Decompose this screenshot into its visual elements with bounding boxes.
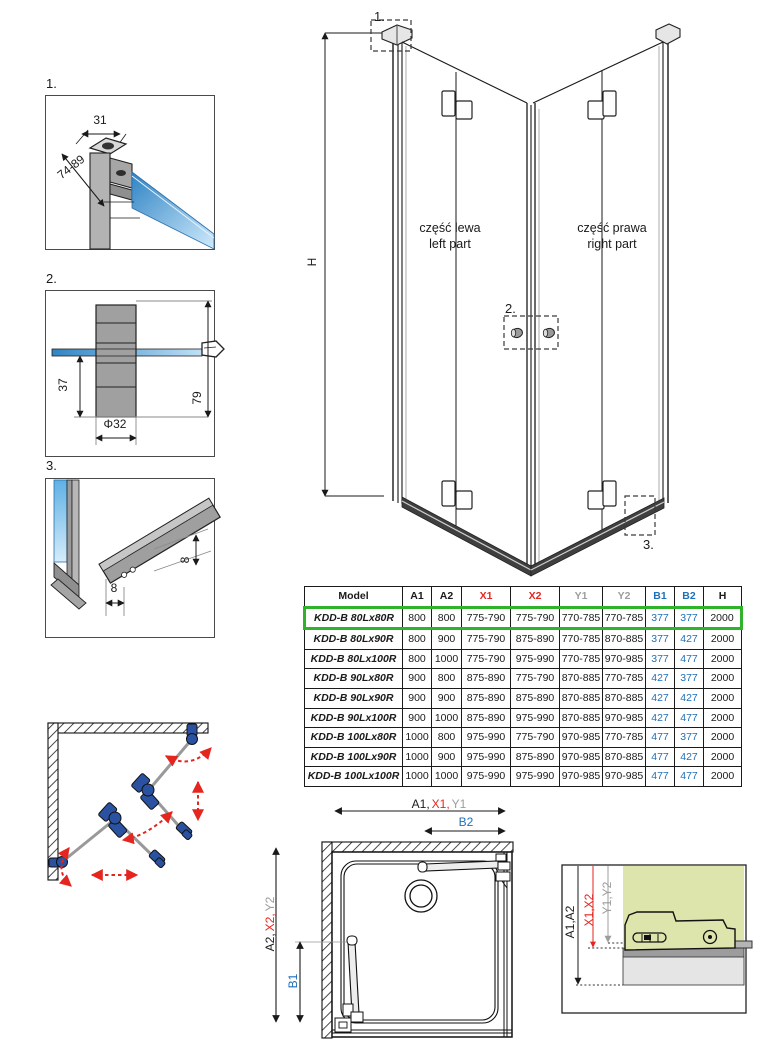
cell-value: 800	[432, 669, 462, 689]
cell-value: 377	[675, 669, 704, 689]
cell-value: 900	[403, 669, 432, 689]
right-part-pl: część prawa	[577, 220, 646, 236]
mounting-section-drawing	[558, 855, 758, 1017]
section-dim-xx: X1,X2	[583, 894, 595, 927]
section-dim-aa: A1,A2	[564, 906, 576, 939]
cell-value: 427	[675, 747, 704, 767]
cell-value: 870-885	[603, 629, 646, 650]
dim-x1: X1,	[432, 797, 450, 811]
cell-value: 427	[646, 708, 675, 728]
column-header-3: X1	[462, 587, 511, 608]
cell-value: 800	[432, 728, 462, 748]
detail-2-dim-diameter: Φ32	[104, 418, 127, 430]
cell-value: 377	[675, 607, 704, 629]
detail-3-dim-w: 8	[111, 582, 118, 594]
column-header-5: Y1	[560, 587, 603, 608]
table-row: KDD-B 80Lx100R8001000775-790975-990770-7…	[305, 649, 742, 669]
cell-value: 2000	[704, 688, 742, 708]
cell-value: 770-785	[560, 629, 603, 650]
cell-model: KDD-B 90Lx90R	[305, 688, 403, 708]
cell-value: 900	[432, 747, 462, 767]
main-callout-2-label: 2.	[505, 302, 516, 315]
section-dim-yy: Y1,Y2	[601, 882, 613, 915]
detail-2-dim-height: 79	[191, 391, 203, 404]
cell-value: 477	[646, 728, 675, 748]
cell-value: 975-990	[511, 708, 560, 728]
cell-value: 775-790	[511, 607, 560, 629]
cell-value: 2000	[704, 607, 742, 629]
cell-value: 900	[403, 708, 432, 728]
cell-value: 2000	[704, 767, 742, 787]
detail-2-label: 2.	[46, 272, 57, 285]
cell-value: 870-885	[603, 688, 646, 708]
cell-value: 427	[646, 669, 675, 689]
cell-value: 1000	[432, 649, 462, 669]
cell-value: 477	[646, 767, 675, 787]
detail-1-label: 1.	[46, 77, 57, 90]
cell-value: 975-990	[511, 649, 560, 669]
right-part-label: część prawa right part	[577, 220, 646, 252]
table-row: KDD-B 90Lx100R9001000875-890975-990870-8…	[305, 708, 742, 728]
cell-value: 870-885	[603, 747, 646, 767]
cell-value: 870-885	[560, 688, 603, 708]
cell-model: KDD-B 90Lx80R	[305, 669, 403, 689]
table-row: KDD-B 90Lx80R900800875-890775-790870-885…	[305, 669, 742, 689]
dim-a2: A2,	[263, 933, 277, 951]
table-row: KDD-B 80Lx90R800900775-790875-890770-785…	[305, 629, 742, 650]
column-header-1: A1	[403, 587, 432, 608]
cell-value: 427	[675, 629, 704, 650]
cell-model: KDD-B 100Lx100R	[305, 767, 403, 787]
cell-value: 427	[675, 688, 704, 708]
cell-value: 2000	[704, 728, 742, 748]
left-part-en: left part	[419, 236, 480, 252]
cell-model: KDD-B 80Lx100R	[305, 649, 403, 669]
cell-value: 2000	[704, 629, 742, 650]
cell-value: 775-790	[462, 629, 511, 650]
cell-value: 900	[432, 688, 462, 708]
cell-value: 2000	[704, 649, 742, 669]
column-header-2: A2	[432, 587, 462, 608]
spec-sheet-page: 1. 31 74-89 2.	[0, 0, 780, 1044]
cell-value: 870-885	[560, 669, 603, 689]
column-header-9: H	[704, 587, 742, 608]
column-header-8: B2	[675, 587, 704, 608]
dim-y2: Y2	[263, 897, 277, 912]
cell-value: 970-985	[603, 708, 646, 728]
cell-value: 800	[403, 629, 432, 650]
cell-value: 775-790	[511, 669, 560, 689]
left-part-label: część lewa left part	[419, 220, 480, 252]
table-row: KDD-B 100Lx90R1000900975-990875-890970-9…	[305, 747, 742, 767]
cell-value: 800	[403, 607, 432, 629]
cell-value: 970-985	[603, 649, 646, 669]
cell-value: 1000	[403, 767, 432, 787]
cell-value: 770-785	[560, 649, 603, 669]
hinge-icons	[442, 91, 616, 509]
cell-value: 427	[646, 688, 675, 708]
column-header-4: X2	[511, 587, 560, 608]
detail-3-label: 3.	[46, 459, 57, 472]
cell-value: 2000	[704, 708, 742, 728]
folding-scheme-drawing	[25, 712, 265, 964]
left-part-pl: część lewa	[419, 220, 480, 236]
cell-value: 875-890	[462, 708, 511, 728]
cell-value: 377	[646, 629, 675, 650]
hinge-parts	[131, 724, 198, 840]
main-isometric-drawing	[298, 4, 698, 586]
dim-a1: A1,	[412, 797, 430, 811]
cell-model: KDD-B 100Lx90R	[305, 747, 403, 767]
cell-value: 770-785	[603, 728, 646, 748]
detail-3-dim-h: 8	[179, 557, 191, 564]
cell-value: 770-785	[560, 607, 603, 629]
dim-y1: Y1	[452, 797, 467, 811]
plan-dim-top: A1,X1,Y1	[412, 798, 469, 810]
cell-model: KDD-B 100Lx80R	[305, 728, 403, 748]
table-row: KDD-B 80Lx80R800800775-790775-790770-785…	[305, 607, 742, 629]
cell-value: 1000	[403, 728, 432, 748]
detail-1-dim-width: 31	[93, 114, 106, 126]
cell-model: KDD-B 80Lx90R	[305, 629, 403, 650]
cell-value: 975-990	[462, 767, 511, 787]
cell-value: 2000	[704, 669, 742, 689]
knob-section-drawing	[46, 291, 214, 456]
cell-value: 477	[675, 767, 704, 787]
dim-x2: X2,	[263, 913, 277, 931]
cell-value: 377	[646, 607, 675, 629]
table-row: KDD-B 100Lx80R1000800975-990775-790970-9…	[305, 728, 742, 748]
cell-value: 900	[403, 688, 432, 708]
dim-b1: B1	[287, 974, 299, 989]
main-dim-height: H	[306, 258, 318, 267]
cell-value: 775-790	[511, 728, 560, 748]
cell-value: 870-885	[560, 708, 603, 728]
motion-arrows	[61, 748, 211, 886]
table-row: KDD-B 90Lx90R900900875-890875-890870-885…	[305, 688, 742, 708]
dim-b2: B2	[459, 816, 474, 828]
main-callout-3-label: 3.	[643, 538, 654, 551]
cell-value: 1000	[403, 747, 432, 767]
plan-view-drawing	[255, 790, 535, 1044]
detail-2-box	[45, 290, 215, 457]
cell-value: 477	[675, 649, 704, 669]
cell-value: 875-890	[462, 669, 511, 689]
cell-value: 975-990	[462, 728, 511, 748]
cell-value: 800	[432, 607, 462, 629]
dimensions-table: ModelA1A2X1X2Y1Y2B1B2H KDD-B 80Lx80R8008…	[303, 586, 743, 787]
plan-dim-left: A2,X2,Y2	[264, 895, 276, 952]
cell-value: 1000	[432, 767, 462, 787]
cell-value: 975-990	[462, 747, 511, 767]
cell-value: 1000	[432, 708, 462, 728]
cell-value: 377	[675, 728, 704, 748]
detail-2-dim-inset: 37	[57, 378, 69, 391]
table-row: KDD-B 100Lx100R10001000975-990975-990970…	[305, 767, 742, 787]
cell-value: 377	[646, 649, 675, 669]
cell-model: KDD-B 90Lx100R	[305, 708, 403, 728]
cell-value: 477	[675, 708, 704, 728]
cell-value: 875-890	[511, 629, 560, 650]
right-part-en: right part	[577, 236, 646, 252]
cell-value: 800	[403, 649, 432, 669]
cell-value: 770-785	[603, 607, 646, 629]
main-callout-1-label: 1.	[374, 10, 385, 23]
column-header-7: B1	[646, 587, 675, 608]
column-header-6: Y2	[603, 587, 646, 608]
cell-value: 2000	[704, 747, 742, 767]
cell-value: 900	[432, 629, 462, 650]
cell-value: 970-985	[560, 747, 603, 767]
cell-value: 875-890	[511, 688, 560, 708]
cell-value: 970-985	[603, 767, 646, 787]
cell-value: 970-985	[560, 728, 603, 748]
cell-value: 775-790	[462, 649, 511, 669]
cell-value: 970-985	[560, 767, 603, 787]
cell-model: KDD-B 80Lx80R	[305, 607, 403, 629]
cell-value: 477	[646, 747, 675, 767]
cell-value: 770-785	[603, 669, 646, 689]
knob-icons	[511, 327, 556, 339]
cell-value: 875-890	[462, 688, 511, 708]
cell-value: 875-890	[511, 747, 560, 767]
table-header-row: ModelA1A2X1X2Y1Y2B1B2H	[305, 587, 742, 608]
cell-value: 775-790	[462, 607, 511, 629]
hinge-parts	[49, 802, 166, 868]
cell-value: 975-990	[511, 767, 560, 787]
column-header-0: Model	[305, 587, 403, 608]
